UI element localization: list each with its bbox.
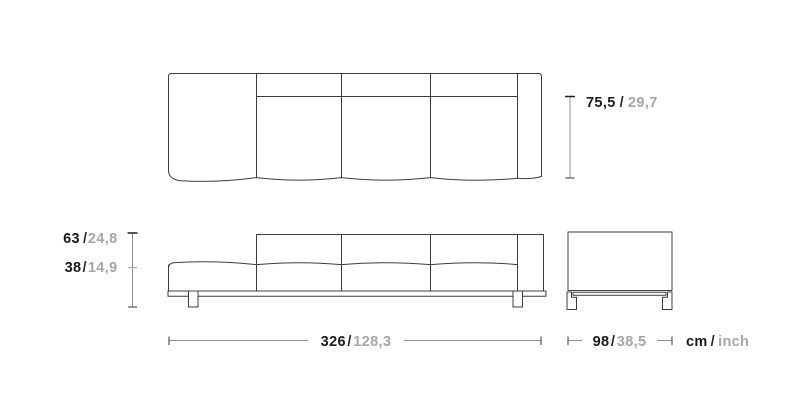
slash-separator: / (347, 334, 351, 350)
value-inch: 38,5 (617, 334, 647, 350)
unit-primary: cm (686, 334, 708, 350)
top-view-cushion-front-edge (169, 171, 542, 181)
front-view-drawing (168, 235, 546, 308)
value-cm: 326 (321, 334, 346, 350)
seat-depth-label: 75,5/29,7 (586, 95, 658, 111)
slash-separator: / (82, 260, 86, 276)
value-cm: 75,5 (586, 95, 616, 111)
value-inch: 29,7 (628, 95, 658, 111)
height-dimension: 63/24,8 38/14,9 (63, 231, 137, 307)
value-cm: 98 (593, 334, 610, 350)
front-view-left-leg (189, 291, 199, 307)
value-inch: 14,9 (88, 260, 118, 276)
total-width-label: 326/128,3 (321, 334, 392, 350)
side-depth-label: 98/38,5 (593, 334, 647, 350)
total-width-dimension: 326/128,3 (169, 334, 541, 350)
front-view-cushion-top-edge (169, 262, 518, 268)
side-view-left-leg (567, 292, 577, 310)
value-inch: 24,8 (88, 231, 118, 247)
units-label: cm/inch (686, 334, 749, 350)
slash-separator: / (611, 334, 615, 350)
unit-secondary: inch (718, 334, 749, 350)
top-view-drawing (169, 74, 542, 182)
seat-depth-dimension: 75,5/29,7 (565, 95, 658, 178)
front-view-platform (168, 291, 546, 296)
top-view-outline (169, 74, 542, 177)
seat-height-label: 38/14,9 (65, 260, 118, 276)
side-depth-dimension: 98/38,5 (568, 334, 672, 350)
total-height-label: 63/24,8 (63, 231, 117, 247)
slash-separator: / (83, 231, 87, 247)
side-view-right-leg (663, 292, 673, 310)
front-view-right-leg (513, 291, 523, 307)
slash-separator: / (620, 95, 624, 111)
technical-drawing-canvas: 75,5/29,7 63/24,8 38/14,9 326/128,3 98/3… (0, 0, 800, 400)
value-inch: 128,3 (353, 334, 391, 350)
side-view-body (568, 232, 672, 291)
sofa-dimension-diagram: 75,5/29,7 63/24,8 38/14,9 326/128,3 98/3… (0, 0, 800, 400)
value-cm: 63 (63, 231, 80, 247)
side-view-platform-bar (573, 292, 666, 295)
slash-separator: / (711, 334, 715, 350)
side-view-drawing (567, 232, 672, 310)
value-cm: 38 (65, 260, 82, 276)
